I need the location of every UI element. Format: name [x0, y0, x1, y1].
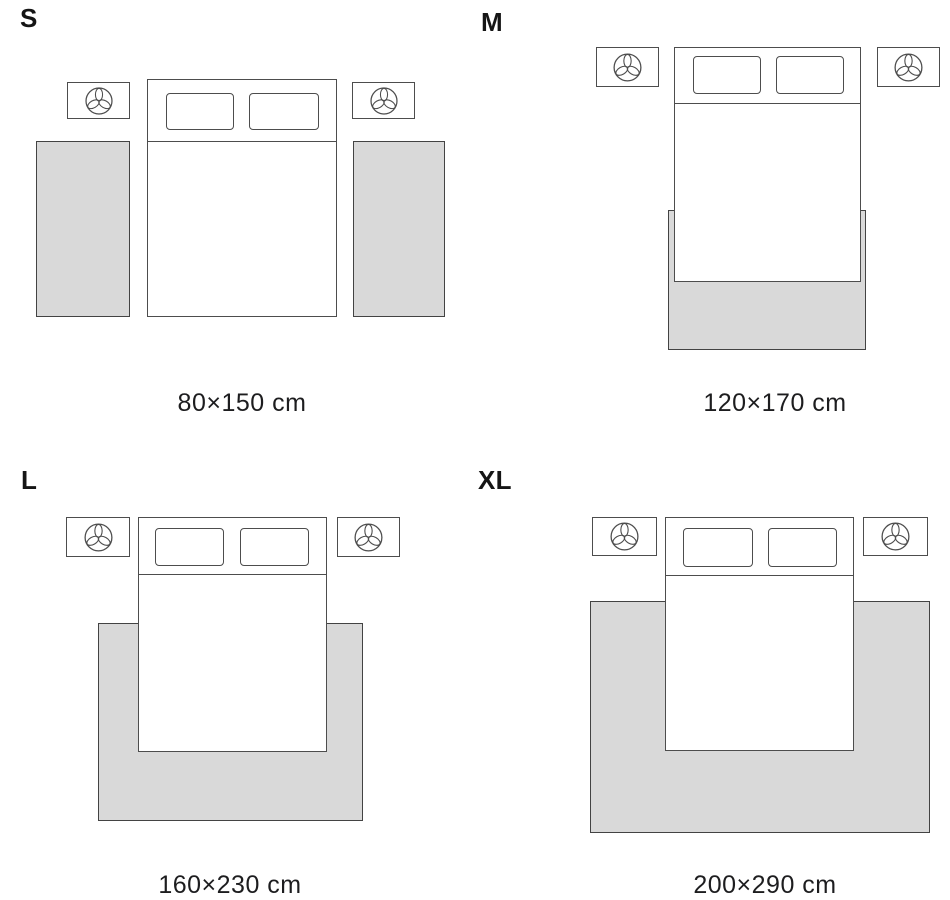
nightstand [863, 517, 928, 556]
size-label: 80×150 cm [92, 389, 392, 418]
rug-size-guide: S 80×150 cm M [0, 0, 950, 900]
nightstand [67, 82, 130, 119]
bed [147, 79, 337, 317]
pillow [768, 528, 837, 567]
pillow [166, 93, 234, 130]
nightstand [352, 82, 415, 119]
plant-icon [368, 85, 400, 117]
plant-icon [352, 521, 385, 554]
pillow [240, 528, 309, 566]
size-variant-s: S 80×150 cm [0, 0, 475, 450]
size-variant-xl: XL 200×290 cm [475, 450, 950, 900]
nightstand [337, 517, 400, 557]
variant-label: L [21, 466, 37, 495]
plant-icon [82, 521, 115, 554]
size-variant-l: L 160×230 cm [0, 450, 475, 900]
pillow [683, 528, 753, 567]
size-label: 160×230 cm [80, 871, 380, 900]
variant-label: XL [478, 466, 512, 495]
size-label: 120×170 cm [625, 389, 925, 418]
plant-icon [879, 520, 912, 553]
plant-icon [83, 85, 115, 117]
plant-icon [892, 51, 925, 84]
pillow [155, 528, 224, 566]
pillow [249, 93, 319, 130]
pillow [693, 56, 761, 94]
bed [674, 47, 861, 282]
size-variant-m: M 120×170 cm [475, 0, 950, 450]
plant-icon [608, 520, 641, 553]
bed [665, 517, 854, 751]
variant-label: S [20, 4, 38, 33]
bed [138, 517, 327, 752]
nightstand [592, 517, 657, 556]
size-label: 200×290 cm [615, 871, 915, 900]
variant-label: M [481, 8, 503, 37]
nightstand [596, 47, 659, 87]
pillow [776, 56, 844, 94]
nightstand [66, 517, 130, 557]
rug-runner-left [36, 141, 130, 317]
plant-icon [611, 51, 644, 84]
rug-runner-right [353, 141, 445, 317]
nightstand [877, 47, 940, 87]
